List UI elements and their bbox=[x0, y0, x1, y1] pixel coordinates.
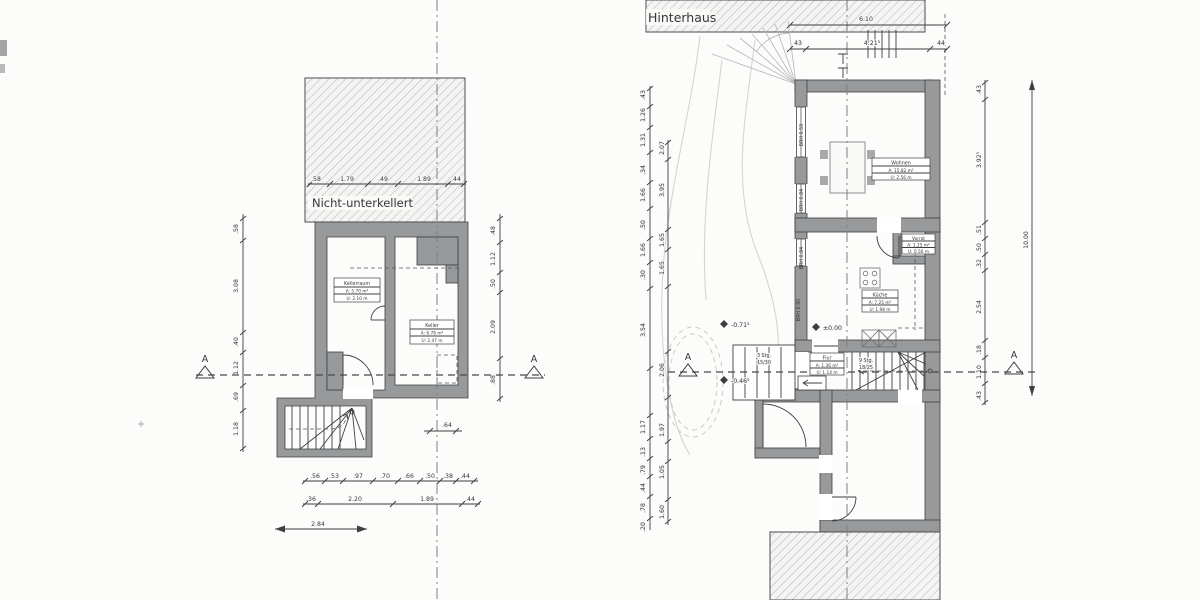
elevation-label: -0.46⁵ bbox=[731, 378, 750, 385]
dim-label: .58 bbox=[311, 176, 321, 183]
dim-label: 1.10 bbox=[976, 365, 983, 379]
room-name: Küche bbox=[873, 293, 888, 299]
section-letter: A bbox=[1011, 350, 1018, 361]
dim-label: .64 bbox=[442, 422, 452, 429]
brh-label: BRH 0.84 bbox=[799, 189, 805, 211]
dim-label: 1.79 bbox=[340, 176, 354, 183]
room-area: A: 1.36 m² bbox=[816, 363, 839, 369]
dim-label: .50 bbox=[976, 243, 983, 253]
dim-label: 1.66 bbox=[640, 243, 647, 257]
stair-count-label: 3 Stg. bbox=[757, 353, 771, 359]
dim-label: 1.89 bbox=[420, 496, 434, 503]
room-name: Wohnen bbox=[891, 161, 910, 167]
dim-label: 1.12 bbox=[490, 252, 497, 266]
stair-walkline bbox=[289, 416, 347, 429]
dim-label: 2.20 bbox=[348, 496, 362, 503]
elevation-label: ±0.00 bbox=[823, 325, 842, 332]
bottom-neighbour-hatch bbox=[770, 532, 940, 600]
dim-label: .43 bbox=[976, 391, 983, 401]
dim-label: .53 bbox=[329, 473, 339, 480]
room-perimeter: U: 1.14 m bbox=[816, 370, 837, 376]
room-perimeter: U: 2.10 m bbox=[346, 296, 367, 302]
dim-label: .44 bbox=[640, 483, 647, 493]
dim-label: 2.09 bbox=[490, 320, 497, 334]
room-area: A: 6.78 m² bbox=[421, 331, 444, 337]
dim-label: 3.08 bbox=[233, 279, 240, 293]
scan-artifacts bbox=[0, 40, 144, 427]
dim-label: .50 bbox=[425, 473, 435, 480]
dim-label: .43 bbox=[976, 85, 983, 95]
tree-outline bbox=[663, 327, 723, 437]
floor-plan-scan: Nicht-unterkellert Hinterhaus .58 1.79 .… bbox=[0, 0, 1200, 600]
dim-label: .44 bbox=[460, 473, 470, 480]
door-opening bbox=[343, 389, 373, 399]
dim-label: 1.05 bbox=[659, 465, 666, 479]
dim-label: 1.26 bbox=[640, 108, 647, 122]
dim-label: 43 bbox=[794, 40, 802, 47]
dim-label: .50 bbox=[490, 279, 497, 289]
section-letter: A bbox=[202, 354, 209, 365]
dim-label: 1.97 bbox=[659, 423, 666, 437]
dim-label: .32 bbox=[976, 259, 983, 269]
room-area: A: 15.82 m² bbox=[888, 168, 914, 174]
dim-label: .44 bbox=[451, 176, 461, 183]
dim-label: .38 bbox=[443, 473, 453, 480]
right-plan-title: Hinterhaus bbox=[648, 10, 716, 25]
dim-label: .58 bbox=[233, 224, 240, 234]
dim-label: .88 bbox=[490, 375, 497, 385]
stair-ratio-label: 15/30 bbox=[757, 360, 771, 366]
dim-label: .51 bbox=[976, 225, 983, 235]
dim-label: .66 bbox=[404, 473, 414, 480]
dim-label: .79 bbox=[640, 465, 647, 475]
room-area: A: 5.70 m² bbox=[346, 289, 369, 295]
stove-icon bbox=[860, 268, 880, 288]
dim-label: 6.10 bbox=[859, 16, 873, 23]
brh-label: BRH 0.84 bbox=[799, 247, 805, 269]
dim-label: 2.06 bbox=[659, 363, 666, 377]
left-stair-treads bbox=[292, 406, 364, 449]
dim-label: 1.89 bbox=[417, 176, 431, 183]
dim-label: 2.07 bbox=[659, 141, 666, 155]
dim-label: .70 bbox=[380, 473, 390, 480]
dim-label: .48 bbox=[490, 226, 497, 236]
room-area: A: 1.25 m² bbox=[907, 242, 930, 248]
floor-plan-drawing: Nicht-unterkellert Hinterhaus .58 1.79 .… bbox=[0, 0, 1200, 600]
dim-label: .56 bbox=[310, 473, 320, 480]
dim-label: .97 bbox=[353, 473, 363, 480]
dim-label: 1.65 bbox=[659, 233, 666, 247]
wall-chunk bbox=[327, 352, 343, 390]
entrance-arrow bbox=[798, 376, 826, 390]
dim-label: 3.95 bbox=[659, 183, 666, 197]
dim-label: 2.84 bbox=[311, 521, 325, 528]
dim-label: 3.54 bbox=[640, 323, 647, 337]
dim-label: 1.65 bbox=[659, 261, 666, 275]
section-letter: A bbox=[685, 352, 692, 363]
dim-label: .13 bbox=[640, 447, 647, 457]
room-name: Keller bbox=[425, 323, 438, 329]
stair-count-label: 9 Stg. bbox=[859, 358, 873, 364]
dim-label: .78 bbox=[640, 503, 647, 513]
dim-label: .43 bbox=[640, 90, 647, 100]
dim-label: .18 bbox=[976, 345, 983, 355]
dim-label: 1.31 bbox=[640, 133, 647, 147]
left-door-arc bbox=[343, 306, 385, 385]
dim-label: 2.54 bbox=[976, 300, 983, 314]
brh-label: BRH 0.59 bbox=[799, 124, 805, 146]
stair-ratio-label: 18/25 bbox=[859, 365, 873, 371]
dim-label: .36 bbox=[306, 496, 316, 503]
room-perimeter: U: 2.56 m bbox=[890, 175, 911, 181]
room-perimeter: U: 0.56 m bbox=[908, 249, 929, 255]
dim-label: .69 bbox=[233, 392, 240, 402]
dim-label: 1.18 bbox=[233, 422, 240, 436]
left-plan-title: Nicht-unterkellert bbox=[312, 196, 413, 210]
room-name: Kellerraum bbox=[344, 281, 370, 287]
dim-label: 1.66 bbox=[640, 188, 647, 202]
dim-label: .34 bbox=[640, 165, 647, 175]
section-letter: A bbox=[531, 354, 538, 365]
left-plan bbox=[277, 78, 468, 457]
room-name: Flur bbox=[822, 356, 831, 362]
room-name: Vorrat bbox=[912, 236, 925, 242]
dim-label: .40 bbox=[233, 337, 240, 347]
dim-label: 1.12 bbox=[233, 361, 240, 375]
dim-label: .44 bbox=[465, 496, 475, 503]
room-perimeter: U: 1.98 m bbox=[869, 307, 890, 313]
dim-label: .49 bbox=[378, 176, 388, 183]
dim-label: .30 bbox=[640, 270, 647, 280]
dim-label: 4.21⁵ bbox=[864, 40, 881, 47]
dim-label: 1.60 bbox=[659, 505, 666, 519]
dim-label: .50 bbox=[640, 220, 647, 230]
dim-label: 3.92⁵ bbox=[976, 151, 983, 168]
dim-label: .20 bbox=[640, 522, 647, 532]
dim-label: 1.17 bbox=[640, 420, 647, 434]
brh-label: BRH 0.90 bbox=[796, 299, 802, 321]
dim-label: 10.00 bbox=[1023, 231, 1030, 249]
elevation-label: -0.71⁵ bbox=[731, 322, 750, 329]
room-area: A: 7.25 m² bbox=[869, 300, 892, 306]
dim-label: 44 bbox=[937, 40, 945, 47]
room-perimeter: U: 2.47 m bbox=[421, 338, 442, 344]
